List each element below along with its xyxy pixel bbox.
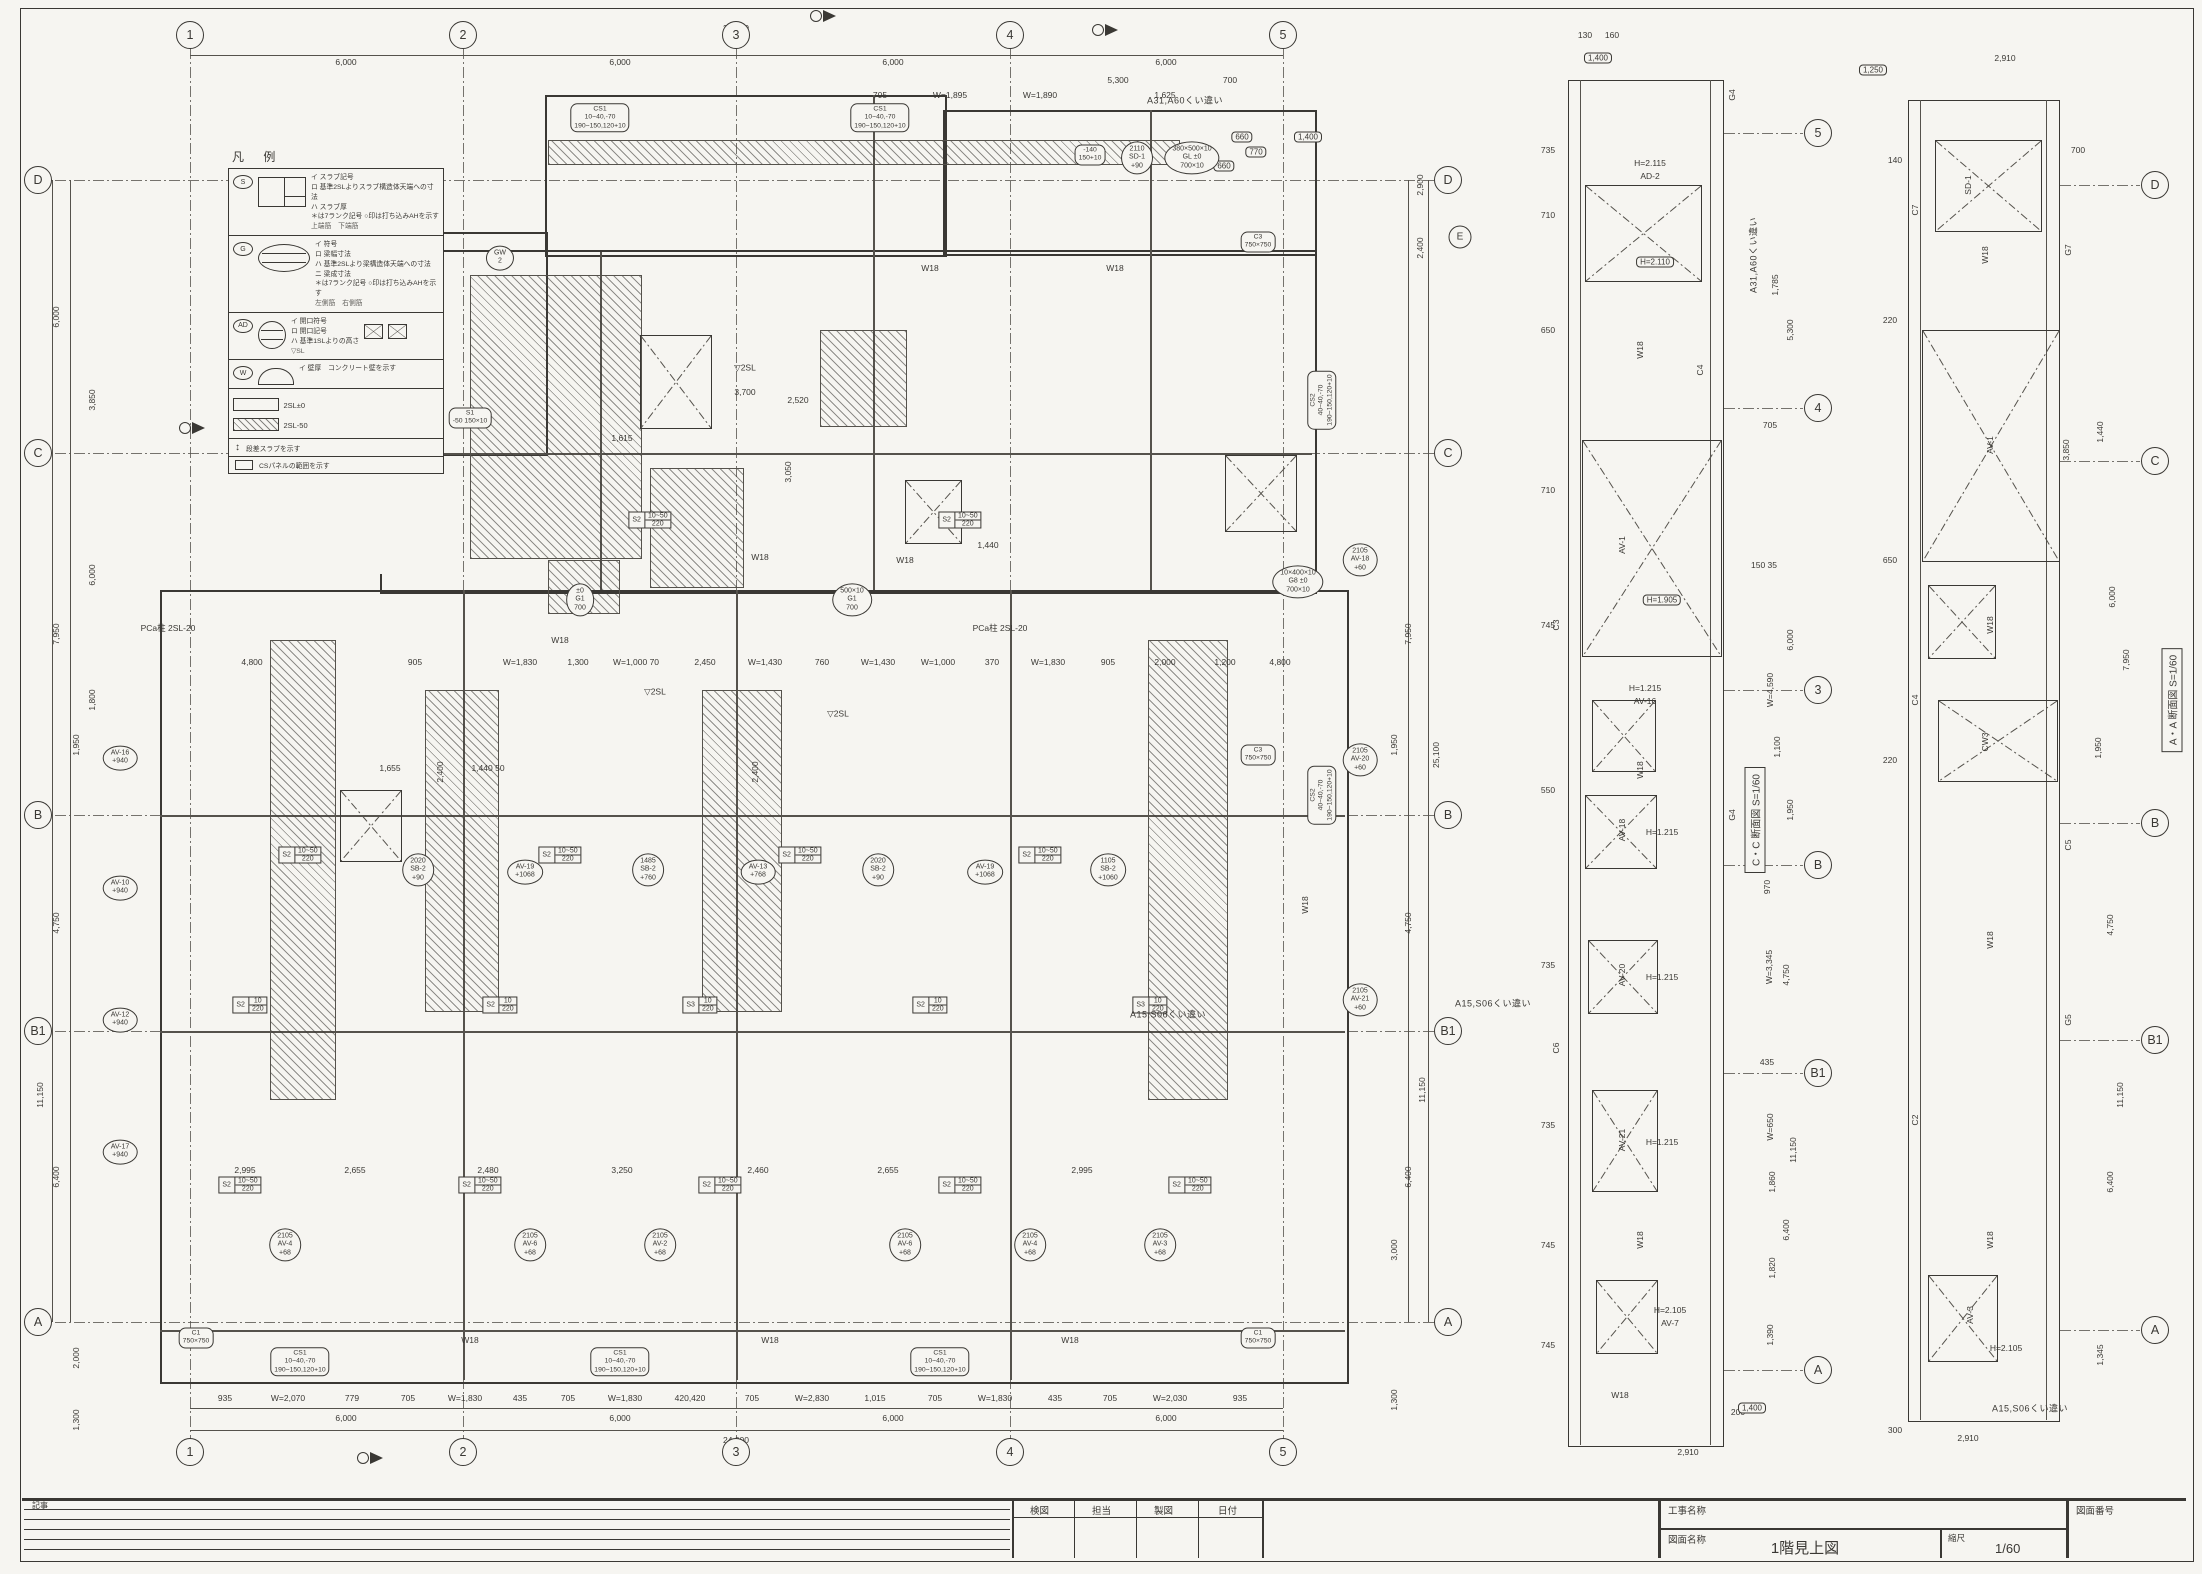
section-annotation: 140 — [1888, 155, 1902, 165]
annotation-text: 1,200 — [1214, 657, 1235, 667]
callout-box: C1750×750 — [1241, 1328, 1276, 1349]
section-annotation: 130 — [1578, 30, 1592, 40]
annotation-text: W=1,000 70 — [613, 657, 659, 667]
dimension-text: W=2,030 — [1153, 1393, 1187, 1403]
opening-xbox — [1935, 140, 2042, 232]
scale-value: 1/60 — [1995, 1541, 2020, 1556]
dimension-text: 6,000 — [609, 57, 630, 67]
dimension-text: 6,000 — [335, 57, 356, 67]
section-annotation: W18 — [1635, 341, 1645, 358]
tb-notes-rule — [24, 1549, 1010, 1550]
callout-ellipse: 2105AV-6+68 — [514, 1228, 546, 1261]
dimension-text: 6,000 — [882, 1413, 903, 1423]
annotation-text: 3,250 — [611, 1165, 632, 1175]
callout-box: CS110~40,-70190~150,120+10 — [570, 103, 629, 132]
section-annotation: H=2.105 — [1990, 1343, 2022, 1353]
dimension-text: 2,400 — [1415, 237, 1425, 258]
dimension-text: W=1,895 — [933, 90, 967, 100]
section-annotation: 710 — [1541, 210, 1555, 220]
annotation-text: W18 — [1106, 263, 1123, 273]
grid-bubble: B1 — [24, 1017, 52, 1045]
section-annotation: 710 — [1541, 485, 1555, 495]
callout-ellipse: 1105SB-2+1060 — [1090, 853, 1126, 886]
section-annotation: 4,750 — [2105, 914, 2115, 935]
dimension-text: 705 — [561, 1393, 575, 1403]
dimension-text: 1,300 — [71, 1409, 81, 1430]
grid-bubble: A — [1434, 1308, 1462, 1336]
callout-ellipse: 2105AV-6+68 — [889, 1228, 921, 1261]
callout-ellipse: 1485SB-2+760 — [632, 853, 664, 886]
section-annotation: AV-16 — [1634, 696, 1657, 706]
tb-divider — [1940, 1528, 1942, 1558]
annotation-text: 905 — [1101, 657, 1115, 667]
callout-box: C3750×750 — [1241, 232, 1276, 253]
callout-box: CS110~40,-70190~150,120+10 — [910, 1347, 969, 1376]
legend-row: ADイ 開口符号ロ 開口記号ハ 基準1SLよりの高さ▽SL — [229, 312, 443, 359]
grid-bubble: C — [1434, 439, 1462, 467]
grid-bubble: B — [1804, 851, 1832, 879]
dimension-text: 435 — [1048, 1393, 1062, 1403]
dimension-text: 4,750 — [1403, 912, 1413, 933]
grid-bubble: D — [1434, 166, 1462, 194]
section-grid-line — [1724, 1073, 1803, 1074]
dimension-text: 1,015 — [864, 1393, 885, 1403]
section-annotation: G4 — [1727, 809, 1737, 820]
tb-divider — [1198, 1498, 1199, 1558]
grid-bubble: 3 — [722, 21, 750, 49]
annotation-text: 4,800 — [241, 657, 262, 667]
annotation-text: W18 — [751, 552, 768, 562]
dimension-text: W=1,830 — [448, 1393, 482, 1403]
callout-ellipse: 2105AV-4+68 — [269, 1228, 301, 1261]
legend-row: Wイ 壁厚 コンクリート壁を示す — [229, 359, 443, 388]
annotation-text: W=1,830 — [503, 657, 537, 667]
callout-ellipse: AV-16+940 — [103, 746, 138, 771]
drawing-sheet: 1122334455DDCCBBB1B1AAE6,0006,0006,0006,… — [0, 0, 2202, 1574]
dimension-text: 1,300 — [1389, 1389, 1399, 1410]
section-annotation: AV-18 — [1617, 819, 1627, 842]
section-annotation: C4 — [1910, 695, 1920, 706]
grid-bubble: A — [2141, 1316, 2169, 1344]
signoff-header-date: 日付 — [1218, 1503, 1237, 1517]
discrepancy-note: A15,S06くい違い — [1992, 1402, 2068, 1415]
signoff-header-incharge: 担当 — [1092, 1503, 1111, 1517]
callout-box: C1750×750 — [179, 1328, 214, 1349]
section-annotation: 3,850 — [2061, 439, 2071, 460]
grid-bubble: 4 — [1804, 394, 1832, 422]
section-grid-line — [2060, 823, 2140, 824]
opening-sample — [364, 323, 406, 356]
tb-divider — [1012, 1498, 1014, 1558]
callout-ellipse: 2105AV-4+68 — [1014, 1228, 1046, 1261]
dimension-text: 1,950 — [1389, 734, 1399, 755]
open-symbol — [258, 321, 286, 349]
annotation-text: 2,520 — [787, 395, 808, 405]
dimension-text: 7,950 — [51, 623, 61, 644]
hatched-slab-area — [470, 275, 642, 559]
section-title: A・A 断面図 S=1/60 — [2162, 648, 2183, 752]
section-cut-flag — [810, 10, 836, 22]
opening-xbox — [1938, 700, 2058, 782]
annotation-text: W=1,830 — [1031, 657, 1065, 667]
dimension-text: 705 — [401, 1393, 415, 1403]
tb-notes-rule — [24, 1509, 1010, 1510]
annotation-text: ▽2SL — [827, 709, 849, 720]
dimension-text: 420,420 — [675, 1393, 706, 1403]
annotation-text: 1,300 — [567, 657, 588, 667]
grid-bubble: B — [24, 801, 52, 829]
dimension-text: W=1,830 — [978, 1393, 1012, 1403]
dimension-text: 6,000 — [335, 1413, 356, 1423]
section-inner-line — [1920, 100, 1921, 1420]
callout-box: CS110~40,-70190~150,120+10 — [850, 103, 909, 132]
annotation-text: W18 — [921, 263, 938, 273]
section-cut-flag — [179, 422, 205, 434]
dimension-text: 6,000 — [609, 1413, 630, 1423]
dimension-text: 6,000 — [51, 306, 61, 327]
dimension-box: 770 — [1245, 147, 1266, 158]
legend-row-marker: W — [233, 366, 253, 380]
slab-mark: S210~50220 — [938, 1177, 981, 1194]
section-annotation: 160 — [1605, 30, 1619, 40]
dimension-text: 935 — [1233, 1393, 1247, 1403]
section-annotation: 735 — [1541, 1120, 1555, 1130]
section-annotation: W=4,590 — [1765, 673, 1775, 707]
partition-line — [190, 1430, 1283, 1431]
section-annotation: AV-3 — [1965, 1306, 1975, 1324]
annotation-text: 905 — [408, 657, 422, 667]
annotation-text: 2,655 — [877, 1165, 898, 1175]
grid-bubble: 4 — [996, 1438, 1024, 1466]
slab-mark: S210220 — [232, 997, 267, 1014]
callout-ellipse: GW2 — [486, 246, 514, 271]
section-annotation: 550 — [1541, 785, 1555, 795]
partition-line — [1150, 110, 1152, 590]
annotation-text: 2,995 — [1071, 1165, 1092, 1175]
dimension-text: 935 — [218, 1393, 232, 1403]
hatched-slab-area — [820, 330, 907, 427]
callout-ellipse: 500×10G1700 — [832, 583, 872, 616]
slab-mark: S210~50220 — [278, 847, 321, 864]
annotation-text: PCa柱 2SL-20 — [141, 622, 196, 634]
legend-row-text: イ 符号ロ 梁幅寸法ハ 基準2SLより梁構造体天端への寸法ニ 梁成寸法＊は7ラン… — [315, 240, 439, 309]
callout-box: CS240~40,-70190~150,120+10 — [1307, 370, 1336, 429]
section-grid-line — [2060, 185, 2140, 186]
tb-divider — [1012, 1517, 1264, 1518]
section-annotation: AD-2 — [1640, 171, 1659, 181]
dimension-text: 6,000 — [882, 57, 903, 67]
section-annotation: 1,390 — [1765, 1324, 1775, 1345]
section-annotation: 7,950 — [2121, 649, 2131, 670]
slab-mark: S210~50220 — [778, 847, 821, 864]
partition-line — [52, 180, 53, 1322]
callout-ellipse: 2020SB-2+90 — [402, 853, 434, 886]
section-cut-flag — [357, 1452, 383, 1464]
partition-line — [160, 1330, 1345, 1332]
dimension-text: 435 — [513, 1393, 527, 1403]
opening-xbox — [1582, 440, 1722, 657]
opening-xbox — [640, 335, 712, 429]
dimension-text: W=1,890 — [1023, 90, 1057, 100]
section-annotation: W18 — [1611, 1390, 1628, 1400]
annotation-text: W=1,430 — [861, 657, 895, 667]
signoff-header-check: 検図 — [1030, 1503, 1049, 1517]
annotation-text: W18 — [761, 1335, 778, 1345]
annotation-text: W18 — [896, 555, 913, 565]
hatched-slab-area — [1148, 640, 1228, 1100]
hatched-slab-area — [425, 690, 499, 1012]
dimension-box: 1,250 — [1859, 65, 1887, 76]
dimension-text: 700 — [1223, 75, 1237, 85]
grid-bubble: D — [2141, 171, 2169, 199]
dimension-text: 705 — [928, 1393, 942, 1403]
legend-row-marker: AD — [233, 319, 253, 333]
dimension-text: 4,750 — [51, 912, 61, 933]
slab-mark: S210~50220 — [698, 1177, 741, 1194]
section-annotation: C7 — [1910, 205, 1920, 216]
dimension-text: 6,400 — [1403, 1166, 1413, 1187]
partition-line — [190, 1408, 1283, 1409]
annotation-text: W=1,000 — [921, 657, 955, 667]
section-annotation: AV-1 — [1617, 536, 1627, 554]
section-grid-line — [2060, 1040, 2140, 1041]
section-grid-line — [1724, 1370, 1803, 1371]
legend-box: 凡 例 Sイ スラブ記号ロ 基準2SLよりスラブ構造体天端への寸法ハ スラブ厚＊… — [228, 148, 444, 574]
dimension-text: 11,150 — [35, 1082, 45, 1107]
section-annotation: G7 — [2063, 244, 2073, 255]
grid-bubble: 1 — [176, 1438, 204, 1466]
dimension-text: 705 — [1103, 1393, 1117, 1403]
section-annotation: H=1.215 — [1646, 1137, 1678, 1147]
annotation-text: 3,050 — [783, 461, 793, 482]
section-grid-line — [1724, 133, 1803, 134]
annotation-text: W18 — [1300, 896, 1310, 913]
grid-bubble: B — [1434, 801, 1462, 829]
annotation-text: 1,440 50 — [471, 763, 504, 773]
annotation-text: 370 — [985, 657, 999, 667]
section-title: C・C 断面図 S=1/60 — [1745, 767, 1766, 873]
section-annotation: 5,300 — [1785, 319, 1795, 340]
section-annotation: 435 — [1760, 1057, 1774, 1067]
partition-line — [1428, 180, 1429, 1322]
annotation-text: 2,655 — [344, 1165, 365, 1175]
callout-ellipse: 2105AV-21+60 — [1343, 983, 1378, 1016]
signoff-header-drafter: 製図 — [1154, 1503, 1173, 1517]
grid-bubble: A — [1804, 1356, 1832, 1384]
grid-bubble: 5 — [1804, 119, 1832, 147]
section-annotation: 1,440 — [2095, 421, 2105, 442]
section-annotation: 650 — [1883, 555, 1897, 565]
callout-ellipse: ±0G1700 — [566, 583, 594, 616]
section-annotation: 1,785 — [1770, 274, 1780, 295]
annotation-text: W18 — [551, 635, 568, 645]
annotation-text: 2,450 — [694, 657, 715, 667]
dimension-text: 705 — [873, 90, 887, 100]
annotation-text: 760 — [815, 657, 829, 667]
drawing-name-label: 図面名称 — [1668, 1532, 1706, 1546]
section-annotation: W18 — [1985, 616, 1995, 633]
section-inner-line — [1710, 80, 1711, 1445]
section-annotation: 745 — [1541, 1240, 1555, 1250]
dimension-text: W=2,070 — [271, 1393, 305, 1403]
section-annotation: 735 — [1541, 145, 1555, 155]
grid-bubble: 4 — [996, 21, 1024, 49]
callout-ellipse: 2020SB-2+90 — [862, 853, 894, 886]
slab-mark: S210~50220 — [218, 1177, 261, 1194]
legend-rows: Sイ スラブ記号ロ 基準2SLよりスラブ構造体天端への寸法ハ スラブ厚＊は7ラン… — [228, 168, 444, 474]
legend-row: Sイ スラブ記号ロ 基準2SLよりスラブ構造体天端への寸法ハ スラブ厚＊は7ラン… — [229, 169, 443, 235]
section-annotation: W18 — [1635, 761, 1645, 778]
slab-mark: S210~50220 — [1018, 847, 1061, 864]
section-cut-flag — [1092, 24, 1118, 36]
dimension-box: H=2.110 — [1636, 257, 1674, 268]
section-annotation: 2,910 — [1994, 53, 2015, 63]
slab-mark: S210~50220 — [938, 512, 981, 529]
callout-ellipse: 2105AV-18+60 — [1343, 543, 1378, 576]
section-annotation: G5 — [2063, 1014, 2073, 1025]
slab-mark: S210220 — [912, 997, 947, 1014]
tb-divider — [1136, 1498, 1137, 1558]
section-annotation: 970 — [1762, 880, 1772, 894]
section-annotation: 1,820 — [1767, 1257, 1777, 1278]
callout-ellipse: AV-17+940 — [103, 1140, 138, 1165]
partition-line — [190, 55, 1283, 56]
section-annotation: 1,950 — [1785, 799, 1795, 820]
dimension-text: 6,000 — [1155, 1413, 1176, 1423]
drawing-name-value: 1階見上図 — [1771, 1537, 1839, 1558]
section-annotation: W18 — [1635, 1231, 1645, 1248]
dimension-box: 1,400 — [1584, 53, 1612, 64]
annotation-text: W18 — [461, 1335, 478, 1345]
annotation-text: PCa柱 2SL-20 — [973, 622, 1028, 634]
grid-bubble: C — [2141, 447, 2169, 475]
callout-ellipse: 2105AV-2+68 — [644, 1228, 676, 1261]
dimension-text: 2,000 — [71, 1347, 81, 1368]
tb-notes-rule — [24, 1529, 1010, 1530]
legend-row-text: イ 壁厚 コンクリート壁を示す — [299, 364, 396, 385]
callout-box: CS110~40,-70190~150,120+10 — [270, 1347, 329, 1376]
section-annotation: C5 — [2063, 840, 2073, 851]
dimension-text: 25,100 — [1431, 742, 1441, 768]
annotation-text: 2,400 — [750, 761, 760, 782]
dimension-text: 3,000 — [1389, 1239, 1399, 1260]
dimension-text: 1,950 — [71, 734, 81, 755]
callout-box: CS240~40,-70190~150,120+10 — [1307, 765, 1336, 824]
section-grid-line — [2060, 1330, 2140, 1331]
legend-symbol-row: CSパネルの範囲を示す — [229, 456, 443, 473]
dimension-box: 1,400 — [1738, 1403, 1766, 1414]
dimension-text: 3,850 — [87, 389, 97, 410]
dimension-text: 6,400 — [51, 1166, 61, 1187]
annotation-text: W=1,430 — [748, 657, 782, 667]
beam-symbol — [258, 244, 310, 272]
section-annotation: 11,150 — [1788, 1137, 1798, 1162]
dimension-text: 779 — [345, 1393, 359, 1403]
opening-xbox — [340, 790, 402, 862]
annotation-text: W18 — [1061, 1335, 1078, 1345]
section-annotation: 4,750 — [1781, 964, 1791, 985]
section-annotation: 1,100 — [1772, 736, 1782, 757]
section-annotation: 2,910 — [1677, 1447, 1698, 1457]
tb-divider — [1262, 1498, 1264, 1558]
section-annotation: 1,860 — [1767, 1171, 1777, 1192]
section-annotation: 6,400 — [1781, 1219, 1791, 1240]
section-inner-line — [1580, 80, 1581, 1445]
grid-bubble: 2 — [449, 1438, 477, 1466]
annotation-text: 2,460 — [747, 1165, 768, 1175]
legend-row-marker: S — [233, 175, 253, 189]
section-annotation: 220 — [1883, 315, 1897, 325]
callout-ellipse: AV-12+940 — [103, 1008, 138, 1033]
opening-xbox — [1225, 455, 1297, 532]
section-annotation: G4 — [1727, 89, 1737, 100]
callout-box: CS110~40,-70190~150,120+10 — [590, 1347, 649, 1376]
dimension-text: 6,000 — [87, 564, 97, 585]
title-block-top-rule — [22, 1498, 2186, 1501]
section-annotation: 1,345 — [2095, 1344, 2105, 1365]
annotation-text: 2,000 — [1154, 657, 1175, 667]
grid-bubble: 3 — [722, 1438, 750, 1466]
section-annotation: W=3,345 — [1764, 950, 1774, 984]
annotation-text: 2,400 — [435, 761, 445, 782]
callout-ellipse: AV-19+1068 — [507, 860, 543, 885]
section-annotation: 745 — [1541, 620, 1555, 630]
annotation-text: 4,800 — [1269, 657, 1290, 667]
callout-ellipse: 380×500×10GL ±0700×10 — [1164, 141, 1219, 174]
legend-title: 凡 例 — [232, 148, 444, 165]
annotation-text: 1,655 — [379, 763, 400, 773]
section-annotation: 745 — [1541, 1340, 1555, 1350]
dimension-text: 11,150 — [1417, 1077, 1427, 1102]
section-annotation: W18 — [1985, 931, 1995, 948]
section-annotation: 11,150 — [2115, 1082, 2125, 1107]
slab-mark: S210~50220 — [538, 847, 581, 864]
section-annotation: 2,910 — [1957, 1433, 1978, 1443]
section-annotation: W18 — [1980, 246, 1990, 263]
hatched-slab-area — [270, 640, 336, 1100]
dimension-box: H=1.905 — [1643, 595, 1681, 606]
partition-line — [1010, 590, 1012, 1380]
callout-box: S1-50 150×10 — [449, 408, 492, 429]
section-grid-line — [2060, 461, 2140, 462]
section-annotation: H=1.215 — [1646, 972, 1678, 982]
section-annotation: 150 35 — [1751, 560, 1777, 570]
section-annotation: 6,000 — [2107, 586, 2117, 607]
section-annotation: 705 — [1763, 420, 1777, 430]
project-name-label: 工事名称 — [1668, 1503, 1706, 1517]
section-annotation: 6,000 — [1785, 629, 1795, 650]
annotation-text: 3,700 — [734, 387, 755, 397]
section-annotation: 220 — [1883, 755, 1897, 765]
section-annotation: 735 — [1541, 960, 1555, 970]
section-grid-line — [1724, 690, 1803, 691]
grid-bubble: B1 — [1434, 1017, 1462, 1045]
dimension-box: 1,400 — [1294, 132, 1322, 143]
section-annotation: CW3 — [1980, 733, 1990, 752]
notes-label: 記事 — [32, 1500, 48, 1511]
section-annotation: AV-7 — [1661, 1318, 1679, 1328]
grid-bubble: A — [24, 1308, 52, 1336]
section-annotation: AV-1 — [1985, 436, 1995, 454]
section-annotation: 700 — [2071, 145, 2085, 155]
discrepancy-note: A15,S06くい違い — [1455, 997, 1531, 1010]
section-annotation: 650 — [1541, 325, 1555, 335]
grid-bubble: 1 — [176, 21, 204, 49]
dimension-box: 660 — [1231, 132, 1252, 143]
legend-row: Gイ 符号ロ 梁幅寸法ハ 基準2SLより梁構造体天端への寸法ニ 梁成寸法＊は7ラ… — [229, 235, 443, 312]
grid-bubble: 2 — [449, 21, 477, 49]
section-annotation: 6,400 — [2105, 1171, 2115, 1192]
